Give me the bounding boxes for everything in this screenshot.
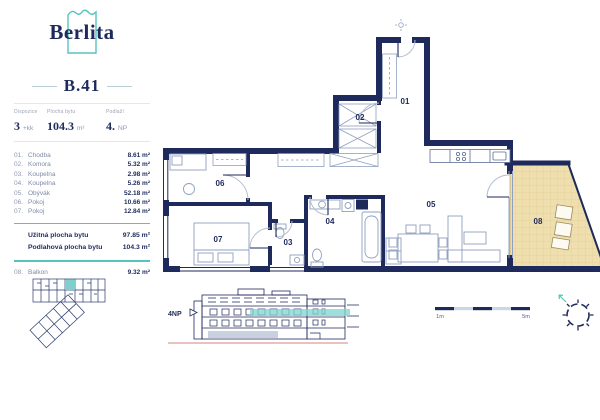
stat-suffix: +kk: [23, 125, 33, 132]
teal-divider: [14, 260, 150, 262]
highlighted-unit: [65, 280, 75, 291]
room-number: 02.: [14, 160, 28, 169]
scale-min-label: 1m: [436, 314, 444, 320]
divider: [14, 103, 150, 104]
unit-id: B.41: [64, 76, 101, 96]
building-elevation: 4NP: [150, 281, 365, 359]
room-number: 01.: [14, 151, 28, 160]
sidebar: Berlita B.41 Dispozice 3 +kk Plocha bytu…: [14, 4, 150, 277]
stat-value: 4.: [106, 119, 115, 133]
stat-suffix: NP: [118, 125, 127, 132]
room-list: 01. Chodba 8.61 m² 02. Komora 5.32 m² 03…: [14, 151, 150, 217]
label-room-01: 01: [401, 97, 410, 106]
label-room-05: 05: [427, 200, 436, 209]
kitchen-counter: [430, 150, 510, 163]
room-row-07: 07. Pokoj 12.84 m²: [14, 207, 150, 216]
divider: [14, 141, 150, 142]
summary-label: Podlahová plocha bytu: [14, 242, 123, 254]
room-area: 8.61 m²: [128, 151, 150, 160]
room-name: Koupelna: [28, 170, 128, 179]
title-dash-left: [32, 86, 57, 87]
stat-label: Dispozice: [14, 109, 47, 115]
furniture: [170, 154, 500, 265]
room-name: Obývák: [28, 189, 124, 198]
room-row-03: 03. Koupelna 2.98 m²: [14, 170, 150, 179]
label-room-03: 03: [284, 238, 293, 247]
north-compass-icon: [552, 288, 600, 336]
room-area: 2.98 m²: [128, 170, 150, 179]
room-area: 5.26 m²: [128, 179, 150, 188]
stat-area: Plocha bytu 104.3 m²: [47, 109, 106, 134]
room-name: Komora: [28, 160, 128, 169]
room-name: Pokoj: [28, 198, 124, 207]
summary-floor-area: Podlahová plocha bytu 104.3 m²: [14, 242, 150, 254]
stat-value: 104.3: [47, 119, 74, 133]
brand-logo: Berlita: [14, 4, 150, 62]
label-room-02: 02: [356, 113, 365, 122]
north-arrow-icon: [559, 295, 566, 302]
stat-floor: Podlaží 4. NP: [106, 109, 146, 134]
summary-value: 97.85 m²: [123, 230, 150, 242]
scale-max-label: 5m: [522, 314, 530, 320]
stat-value: 3: [14, 119, 20, 133]
label-room-07: 07: [214, 235, 223, 244]
room-name: Koupelna: [28, 179, 128, 188]
brand-name: Berlita: [14, 20, 150, 45]
room-name: Chodba: [28, 151, 128, 160]
unit-stats: Dispozice 3 +kk Plocha bytu 104.3 m² Pod…: [14, 109, 150, 134]
stat-layout: Dispozice 3 +kk: [14, 109, 47, 134]
label-room-04: 04: [326, 217, 335, 226]
scale-bar: 1m 5m: [430, 300, 548, 326]
label-room-06: 06: [216, 179, 225, 188]
floor-marker-arrow-icon: [190, 309, 197, 316]
summary-label: Užitná plocha bytu: [14, 230, 123, 242]
entrance-marker-icon: [395, 19, 407, 31]
unit-title: B.41: [14, 76, 150, 96]
summary-usable-area: Užitná plocha bytu 97.85 m²: [14, 230, 150, 242]
room-number: 03.: [14, 170, 28, 179]
room-row-06: 06. Pokoj 10.66 m²: [14, 198, 150, 207]
ground-floor-band: [208, 331, 278, 338]
room-number: 04.: [14, 179, 28, 188]
apartment-floor-plan: 01 02 03 04 05 06 07 08: [158, 10, 600, 282]
room-row-01: 01. Chodba 8.61 m²: [14, 151, 150, 160]
room-number: 07.: [14, 207, 28, 216]
room-name: Pokoj: [28, 207, 124, 216]
windows: [162, 160, 513, 273]
room-area: 52.18 m²: [124, 189, 150, 198]
room-row-05: 05. Obývák 52.18 m²: [14, 189, 150, 198]
room-row-04: 04. Koupelna 5.26 m²: [14, 179, 150, 188]
summary-value: 104.3 m²: [123, 242, 150, 254]
room-area: 5.32 m²: [128, 160, 150, 169]
label-room-08: 08: [534, 217, 543, 226]
stat-suffix: m²: [77, 125, 85, 132]
floor-highlight-band: [250, 309, 350, 316]
room-number: 05.: [14, 189, 28, 198]
room-number: 06.: [14, 198, 28, 207]
room-area: 10.66 m²: [124, 198, 150, 207]
floor-marker-label: 4NP: [168, 311, 182, 318]
site-key-plan: [20, 274, 135, 356]
title-dash-right: [107, 86, 132, 87]
interior-walls: [166, 98, 383, 269]
room-row-02: 02. Komora 5.32 m²: [14, 160, 150, 169]
stat-label: Podlaží: [106, 109, 146, 115]
stat-label: Plocha bytu: [47, 109, 106, 115]
floorplan-sheet: Berlita B.41 Dispozice 3 +kk Plocha bytu…: [0, 0, 600, 420]
room-area: 12.84 m²: [124, 207, 150, 216]
teal-divider: [14, 223, 150, 225]
